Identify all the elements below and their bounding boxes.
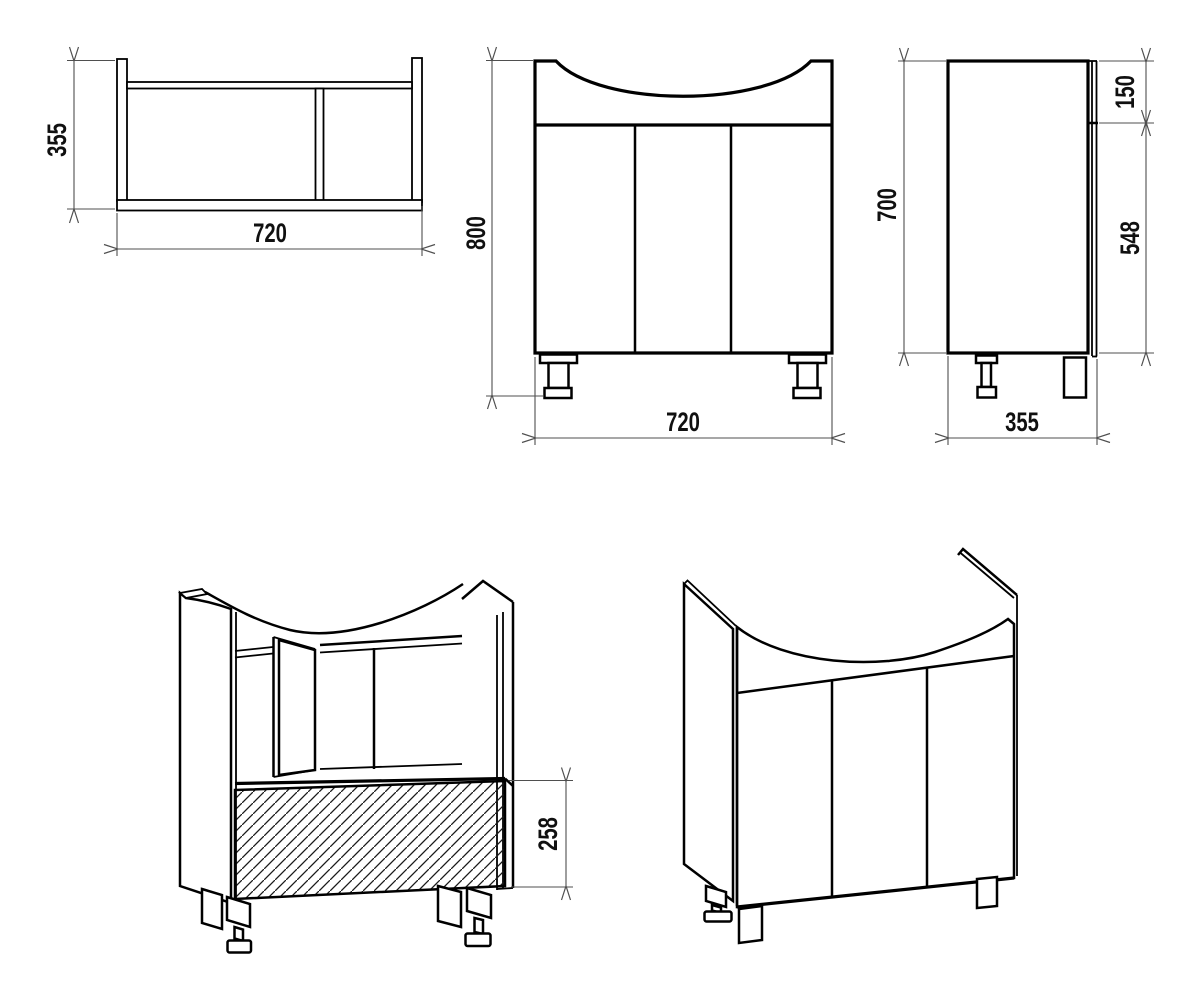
dim-label-front-height: 800 [461, 216, 492, 250]
leg [739, 906, 762, 943]
iso-open-divider [274, 637, 316, 777]
plan-left-side-panel [117, 59, 127, 201]
plan-divider [316, 89, 324, 201]
leg-body [467, 888, 491, 918]
panel-top-face [180, 589, 207, 598]
front-left-leg [540, 355, 577, 399]
leg [202, 889, 222, 929]
adjuster-stem [235, 927, 244, 941]
leg-stem [798, 363, 818, 388]
iso-open-left-side-panel [180, 589, 236, 903]
iso-open-dim-front-panel: 258 [509, 781, 573, 888]
front-dim-width: 720 [535, 357, 832, 445]
left-rail-bottom [235, 654, 273, 658]
panel-outer-face [180, 593, 231, 903]
side-dim-door: 548 [1099, 124, 1154, 353]
iso-open-view: 258 [180, 581, 573, 953]
iso-closed-left-side-panel [684, 581, 737, 907]
panel-bottom-edge [497, 888, 513, 889]
iso-open-hatched-front-panel [235, 781, 505, 899]
iso-open-back-curve [205, 584, 463, 633]
side-dim-top-frame: 150 [1099, 61, 1154, 123]
leg-foot [794, 388, 821, 398]
side-view: 700 150 548 355 [872, 61, 1154, 445]
dim-label-side-height: 700 [872, 188, 903, 222]
right-rail-top [320, 636, 462, 645]
panel-top-edge-inner [960, 553, 1014, 599]
leg-foot [545, 388, 572, 398]
panel-top-edge [462, 581, 513, 602]
front-right-leg [789, 355, 826, 399]
technical-drawing: 355 720 800 [0, 0, 1200, 1002]
left-rail-top [235, 647, 273, 651]
adjuster-stem [475, 918, 484, 934]
plan-right-side-panel [412, 58, 422, 202]
front-view: 800 720 [461, 61, 832, 446]
side-carcass-outline [948, 61, 1088, 353]
leg-flange [789, 355, 826, 364]
dim-label-plan-depth: 355 [42, 123, 73, 157]
front-cabinet-outline [535, 61, 832, 353]
leg [977, 877, 997, 908]
iso-closed-view [684, 549, 1017, 943]
leg-foot [978, 387, 997, 398]
leg-flange [540, 355, 577, 364]
side-dim-height: 700 [872, 61, 946, 353]
iso-open-rails [235, 636, 462, 769]
dim-label-front-width: 720 [666, 407, 700, 438]
plan-dim-width: 720 [117, 206, 422, 256]
leg-body [227, 897, 250, 927]
plan-dim-depth: 355 [42, 61, 115, 210]
top-view: 355 720 [42, 58, 422, 256]
plan-front-rail [117, 200, 422, 211]
adjuster-foot [466, 934, 491, 947]
side-back-leg [1064, 358, 1086, 398]
dim-label-side-top-frame: 150 [1110, 75, 1141, 109]
leg-stem [982, 363, 992, 387]
shelf-back-edge [320, 764, 462, 769]
divider-face [279, 640, 315, 775]
front-dim-height: 800 [461, 61, 543, 397]
dim-label-iso-front-panel: 258 [533, 817, 564, 851]
leg-with-adjuster [227, 897, 251, 953]
adjuster-foot [705, 912, 732, 922]
side-front-leg [976, 356, 997, 398]
leg-stem [549, 363, 569, 388]
leg-with-adjuster [466, 888, 492, 946]
dim-label-plan-width: 720 [253, 218, 287, 249]
panel-outer-face [684, 584, 733, 901]
dim-label-side-depth: 355 [1005, 407, 1039, 438]
dim-label-side-door: 548 [1115, 221, 1146, 255]
adjuster-foot [228, 941, 252, 953]
plan-back-rail [127, 82, 412, 89]
drawing-sheet: 355 720 800 [0, 0, 1200, 1002]
panel-top-edge [958, 549, 1017, 595]
leg [438, 886, 461, 927]
